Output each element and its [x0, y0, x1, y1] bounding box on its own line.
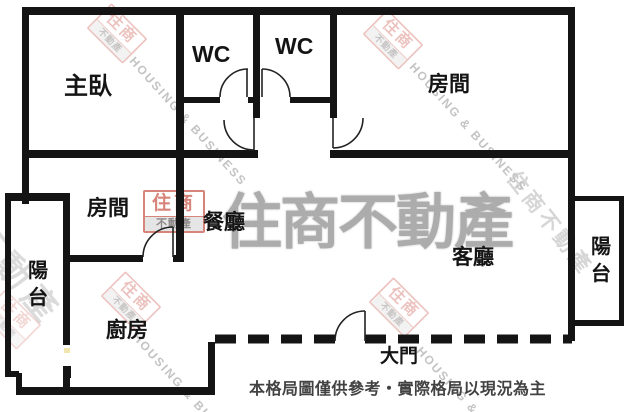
disclaimer-text: 本格局圖僅供參考・實際格局以現況為主	[249, 375, 546, 399]
label-bedroom-middle-left: 房間	[87, 192, 129, 222]
label-wc-left: WC	[192, 41, 230, 68]
label-wc-right: WC	[275, 33, 313, 60]
label-master-bedroom: 主臥	[64, 66, 112, 101]
label-main-door: 大門	[380, 341, 418, 368]
label-dining: 餐廳	[203, 206, 245, 236]
floorplan: 住商不動產 住商不動產 住商不動產 HOUSING & BUSINESS HOU…	[0, 0, 640, 412]
label-living: 客廳	[452, 241, 494, 271]
label-balcony-left: 陽台	[26, 258, 50, 312]
label-kitchen: 廚房	[106, 314, 148, 344]
label-bedroom-top-right: 房間	[428, 68, 470, 98]
label-balcony-right: 陽台	[589, 234, 613, 288]
room-labels: 主臥 WC WC 房間 房間 餐廳 客廳 廚房 陽台 陽台 大門 本格局圖僅供參…	[0, 0, 640, 412]
